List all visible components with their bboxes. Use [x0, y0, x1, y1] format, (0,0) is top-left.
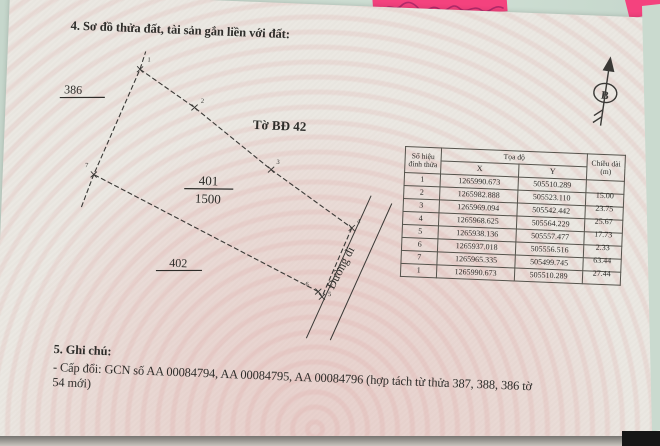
north-compass-icon: B — [581, 51, 630, 131]
coordinate-table: Số hiệu đỉnh thửa Tọa độ Chiều dài (m) X… — [400, 146, 626, 286]
document-page: 4. Sơ đồ thửa đất, tài sản gắn liền với … — [0, 0, 660, 446]
vertex-label: 1 — [147, 57, 151, 64]
map-sheet-label: Tờ BĐ 42 — [253, 117, 307, 134]
vertex-label: 5 — [328, 291, 332, 298]
boundary-left — [81, 49, 145, 209]
vertex-label: 2 — [201, 98, 205, 105]
cell-length: 27.44 — [582, 267, 620, 282]
header-vertex-id: Số hiệu đỉnh thửa — [405, 147, 442, 174]
parcel-area-label: 1500 — [195, 191, 222, 207]
compass-letter: B — [600, 89, 610, 102]
parcel-number-label: 401 — [199, 173, 219, 189]
vertex-label: 3 — [276, 159, 280, 166]
cell-x: 1265990.673 — [436, 265, 514, 281]
adjacent-parcel-402-label: 402 — [169, 256, 188, 271]
adjacent-parcel-386-label: 386 — [64, 82, 83, 97]
photo-frame: 4. Sơ đồ thửa đất, tài sản gắn liền với … — [0, 0, 660, 446]
vertex-ticks — [86, 64, 361, 300]
vertex-numbers: 1 2 3 4 5 6 7 — [80, 54, 367, 299]
dark-object-bottom-right — [622, 431, 660, 446]
photo-bottom-edge — [0, 436, 660, 446]
vertex-label: 7 — [85, 162, 89, 169]
cell-y: 505510.289 — [514, 268, 582, 284]
boundary-topright — [134, 69, 358, 228]
road-label: Đường đi — [324, 244, 358, 292]
cell-vertex-id: 1 — [400, 263, 436, 277]
